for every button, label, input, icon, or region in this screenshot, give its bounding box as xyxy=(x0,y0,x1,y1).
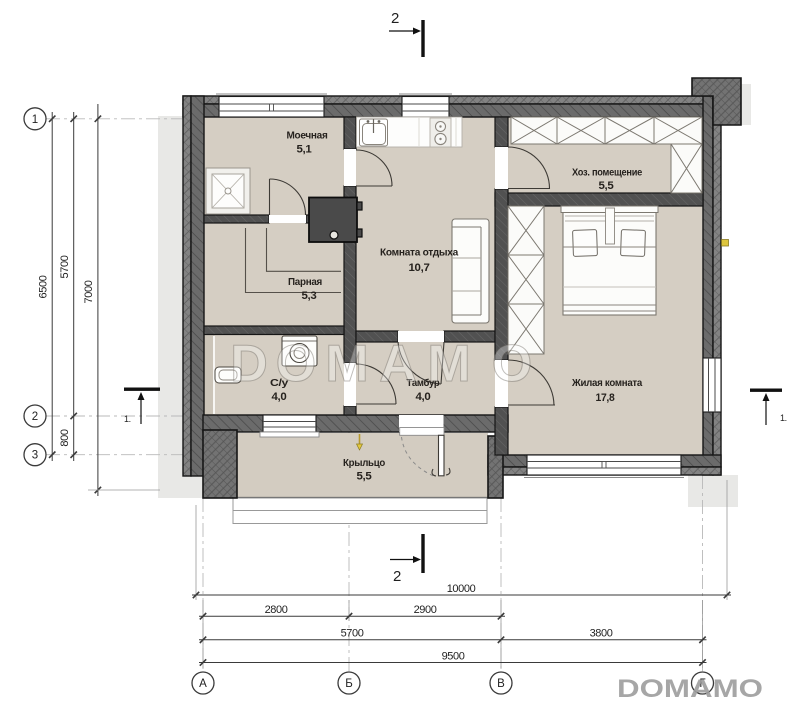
svg-text:2800: 2800 xyxy=(265,604,288,616)
svg-text:10,7: 10,7 xyxy=(409,262,430,274)
svg-text:5,5: 5,5 xyxy=(599,180,614,192)
svg-text:A: A xyxy=(379,335,417,393)
svg-text:Моечная: Моечная xyxy=(287,130,328,142)
svg-text:А: А xyxy=(199,678,207,690)
svg-text:7000: 7000 xyxy=(83,280,95,303)
svg-text:DOMAMO: DOMAMO xyxy=(617,675,763,703)
svg-text:5,3: 5,3 xyxy=(302,290,317,302)
svg-text:9500: 9500 xyxy=(442,650,465,662)
svg-text:Парная: Парная xyxy=(288,276,322,288)
svg-text:O: O xyxy=(492,335,532,393)
svg-text:5,5: 5,5 xyxy=(357,471,372,483)
svg-text:Б: Б xyxy=(345,678,353,690)
svg-text:1.: 1. xyxy=(780,413,787,423)
svg-text:2: 2 xyxy=(393,568,401,585)
svg-text:2: 2 xyxy=(391,10,399,27)
svg-text:D: D xyxy=(230,335,268,393)
svg-text:O: O xyxy=(276,335,316,393)
svg-text:Жилая комната: Жилая комната xyxy=(571,377,642,389)
svg-text:10000: 10000 xyxy=(447,583,476,595)
svg-text:2: 2 xyxy=(32,411,38,423)
svg-text:Крыльцо: Крыльцо xyxy=(343,457,385,469)
svg-text:Хоз. помещение: Хоз. помещение xyxy=(572,167,642,179)
svg-text:M: M xyxy=(427,335,470,393)
svg-text:В: В xyxy=(497,678,505,690)
svg-text:5700: 5700 xyxy=(341,628,364,640)
svg-text:1: 1 xyxy=(32,114,38,126)
svg-text:6500: 6500 xyxy=(38,275,50,298)
svg-text:2900: 2900 xyxy=(414,604,437,616)
svg-text:17,8: 17,8 xyxy=(596,392,615,404)
svg-text:1.: 1. xyxy=(124,414,131,424)
svg-text:M: M xyxy=(325,335,368,393)
svg-text:Комната отдыха: Комната отдыха xyxy=(380,247,458,259)
svg-text:3: 3 xyxy=(32,450,38,462)
svg-text:3800: 3800 xyxy=(590,628,613,640)
svg-text:5700: 5700 xyxy=(59,255,71,278)
svg-text:5,1: 5,1 xyxy=(297,144,312,156)
svg-text:800: 800 xyxy=(59,429,71,446)
